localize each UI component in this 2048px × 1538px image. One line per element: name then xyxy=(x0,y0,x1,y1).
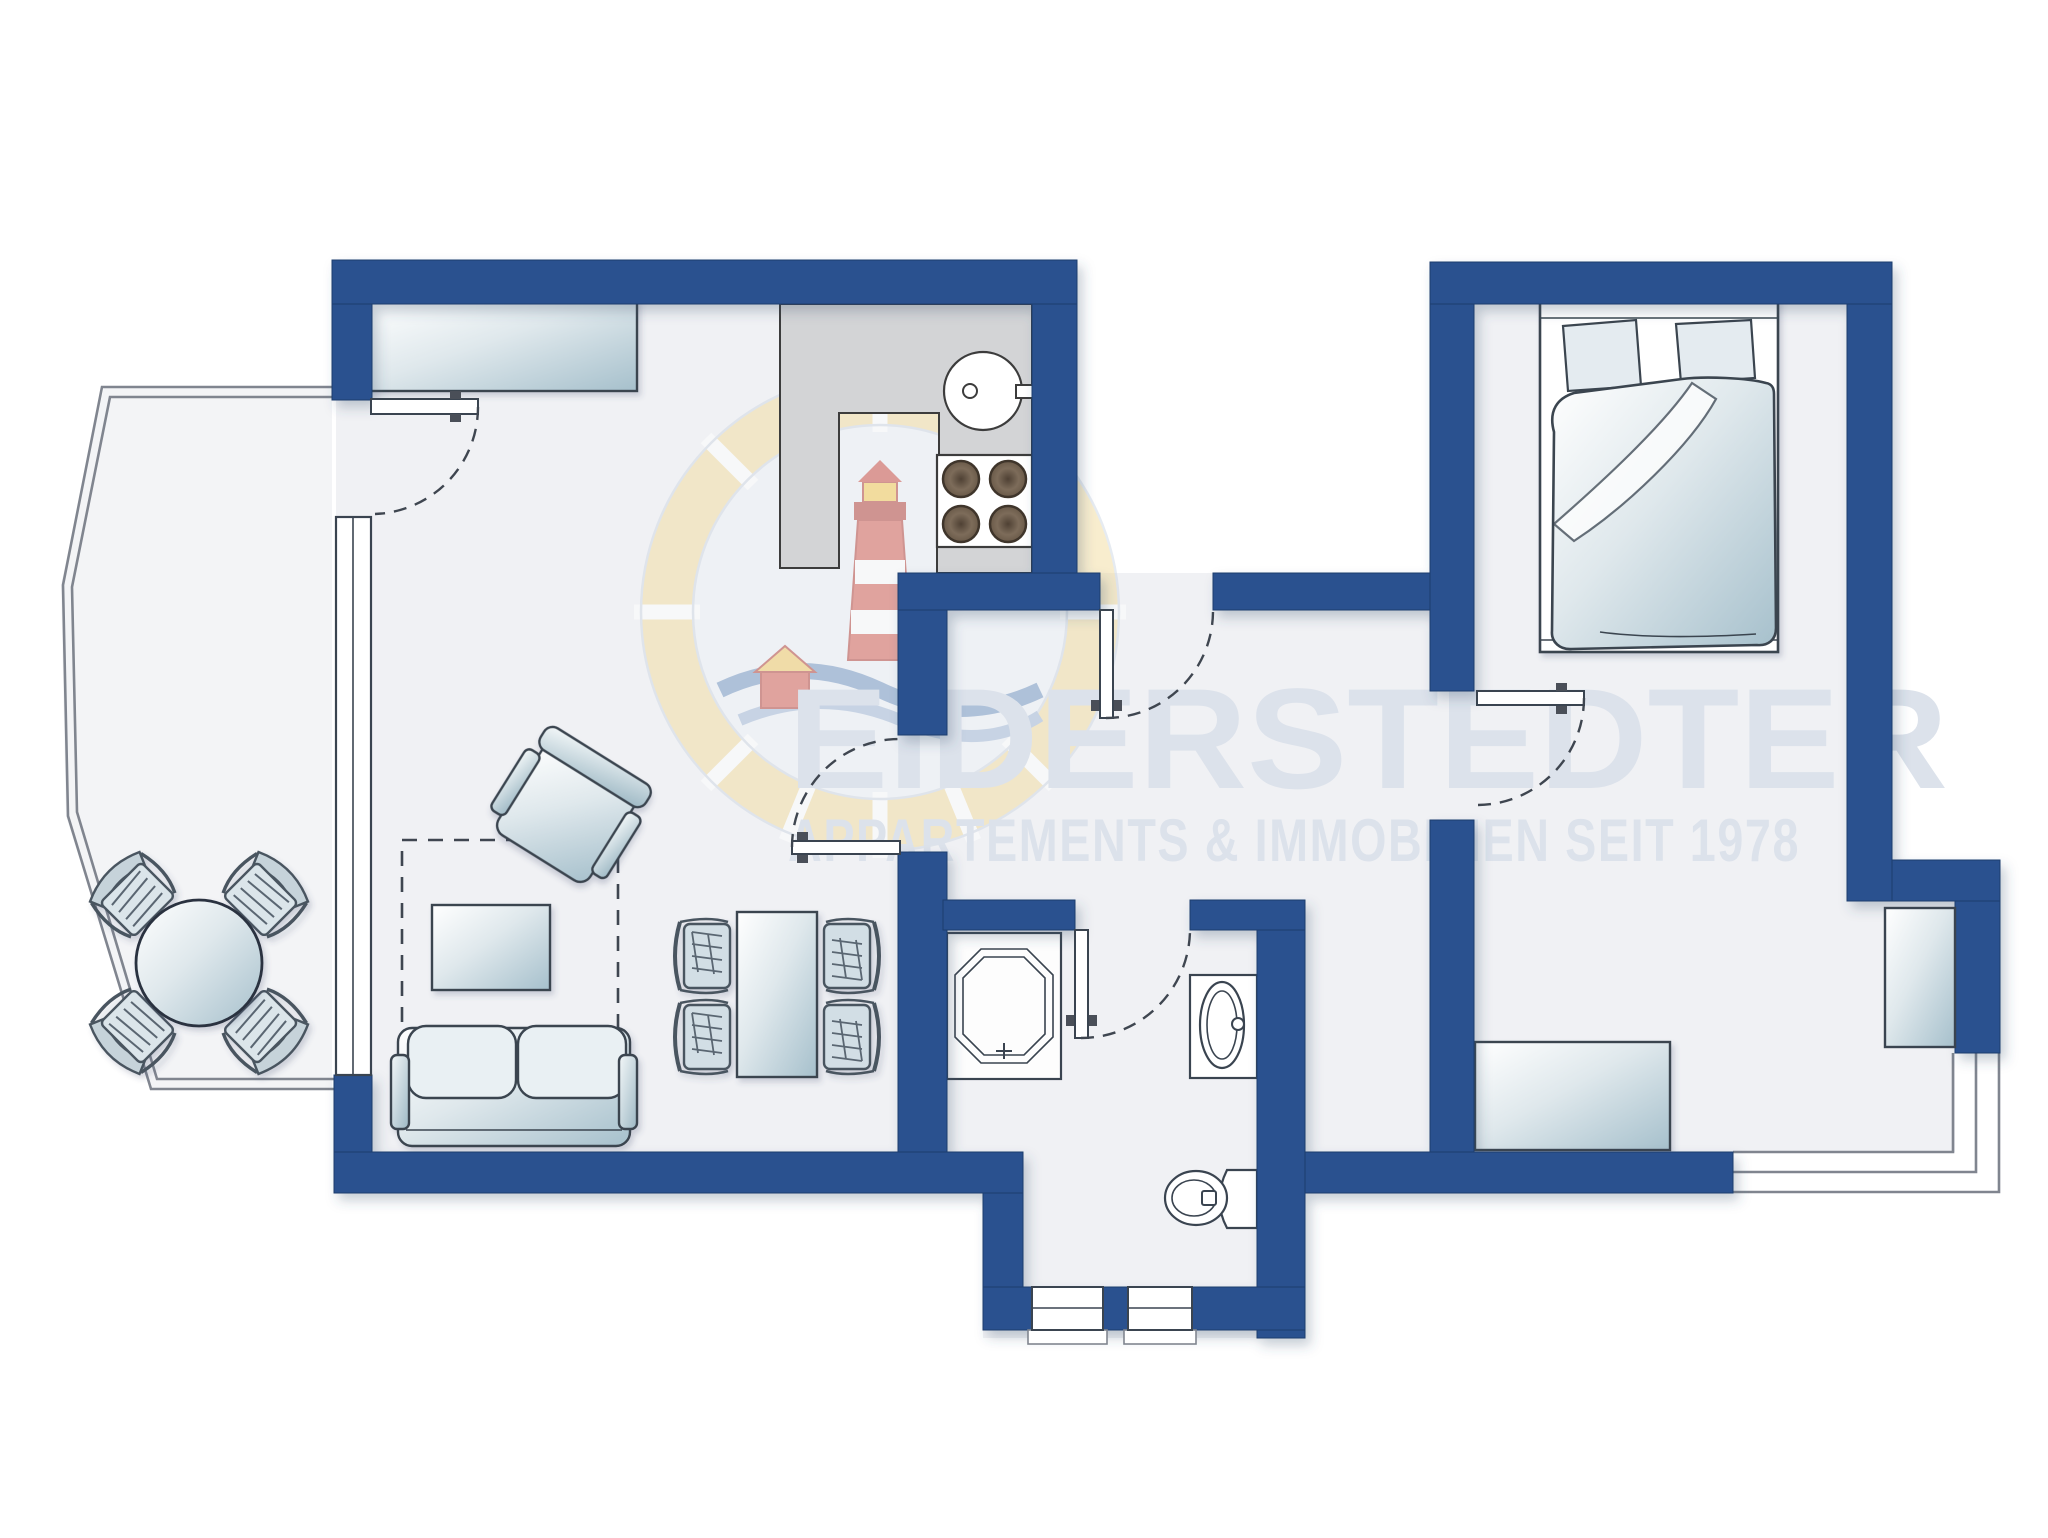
coffee-table xyxy=(432,905,550,990)
burner-icon xyxy=(990,461,1026,497)
wall-niche-jog xyxy=(1892,860,2000,901)
wall-bath-top-right xyxy=(1190,900,1305,930)
pillow xyxy=(1676,320,1755,383)
balcony-round-table xyxy=(136,900,262,1026)
burner-icon xyxy=(990,506,1026,542)
wall-hall-band-left xyxy=(898,573,1100,610)
wall-hall-band-right xyxy=(1213,573,1434,610)
wall-bath-left-lower xyxy=(983,1193,1023,1287)
counter-strip xyxy=(937,547,1032,573)
floor-plan-canvas: EIDERSTEDTER APPARTEMENTS & IMMOBILIEN S… xyxy=(0,0,2048,1538)
watermark-title: EIDERSTEDTER xyxy=(788,660,1948,819)
dining-table xyxy=(737,912,817,1077)
wall-bedroom-top xyxy=(1430,262,1892,304)
burner-icon xyxy=(943,506,979,542)
double-bed xyxy=(1540,300,1778,652)
wall-bedroom-left-lower xyxy=(1430,820,1474,1152)
wall-left-stub xyxy=(334,1075,372,1152)
wall-bottom-right xyxy=(1305,1152,1733,1193)
floor-plan: EIDERSTEDTER APPARTEMENTS & IMMOBILIEN S… xyxy=(0,0,2048,1538)
wall-right-lower xyxy=(1955,901,2000,1053)
wall-bedroom-right xyxy=(1847,304,1892,901)
stove xyxy=(937,455,1032,547)
bedroom-niche-window xyxy=(1885,908,1955,1047)
sofa xyxy=(391,1026,637,1146)
wall-bedroom-left-upper xyxy=(1430,304,1474,691)
dresser xyxy=(1475,1042,1670,1150)
pillow xyxy=(1563,320,1641,391)
living-room-tall-window xyxy=(336,517,371,1075)
wall-bath-right xyxy=(1257,930,1305,1338)
wall-bottom-living xyxy=(334,1152,1023,1193)
wall-bath-top-left xyxy=(943,900,1075,930)
wall-hall-upper xyxy=(898,610,947,735)
sideboard xyxy=(368,300,637,391)
wall-kitchen-right xyxy=(1032,304,1077,573)
toilet xyxy=(1165,1170,1257,1228)
wall-top-living xyxy=(332,260,1077,304)
shower xyxy=(947,933,1061,1079)
wall-hall-lower xyxy=(898,852,947,1152)
wall-left-upper xyxy=(332,304,372,400)
washbasin xyxy=(1190,975,1257,1078)
burner-icon xyxy=(943,461,979,497)
